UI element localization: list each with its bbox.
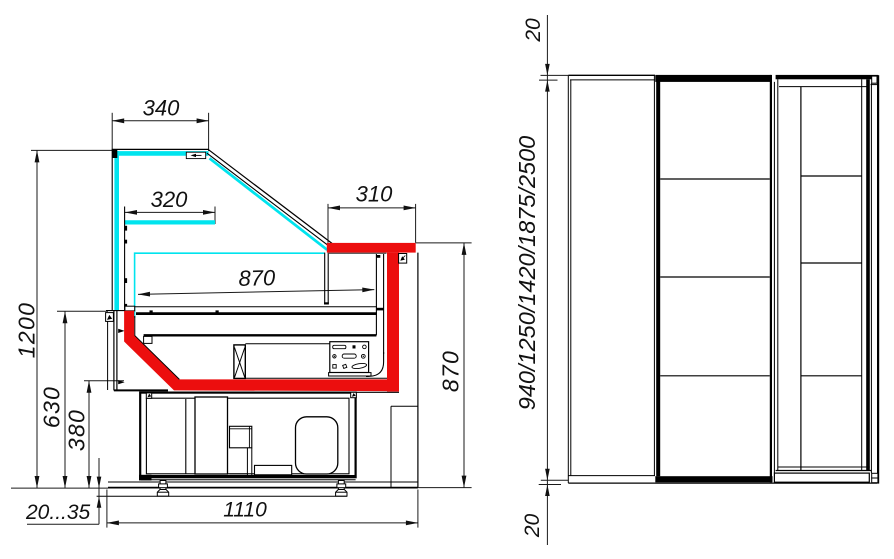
svg-text:310: 310 bbox=[356, 182, 393, 207]
svg-text:20...35: 20...35 bbox=[25, 501, 91, 524]
svg-text:340: 340 bbox=[143, 96, 180, 121]
svg-text:940/1250/1420/1875/2500: 940/1250/1420/1875/2500 bbox=[514, 136, 540, 410]
svg-text:20: 20 bbox=[522, 18, 545, 43]
svg-text:630: 630 bbox=[39, 386, 65, 428]
svg-text:320: 320 bbox=[151, 187, 188, 212]
svg-text:380: 380 bbox=[64, 409, 90, 451]
svg-text:870: 870 bbox=[238, 265, 276, 291]
svg-text:870: 870 bbox=[438, 350, 464, 392]
svg-text:20: 20 bbox=[521, 514, 544, 539]
svg-text:1110: 1110 bbox=[223, 499, 267, 522]
svg-text:1200: 1200 bbox=[14, 302, 40, 358]
